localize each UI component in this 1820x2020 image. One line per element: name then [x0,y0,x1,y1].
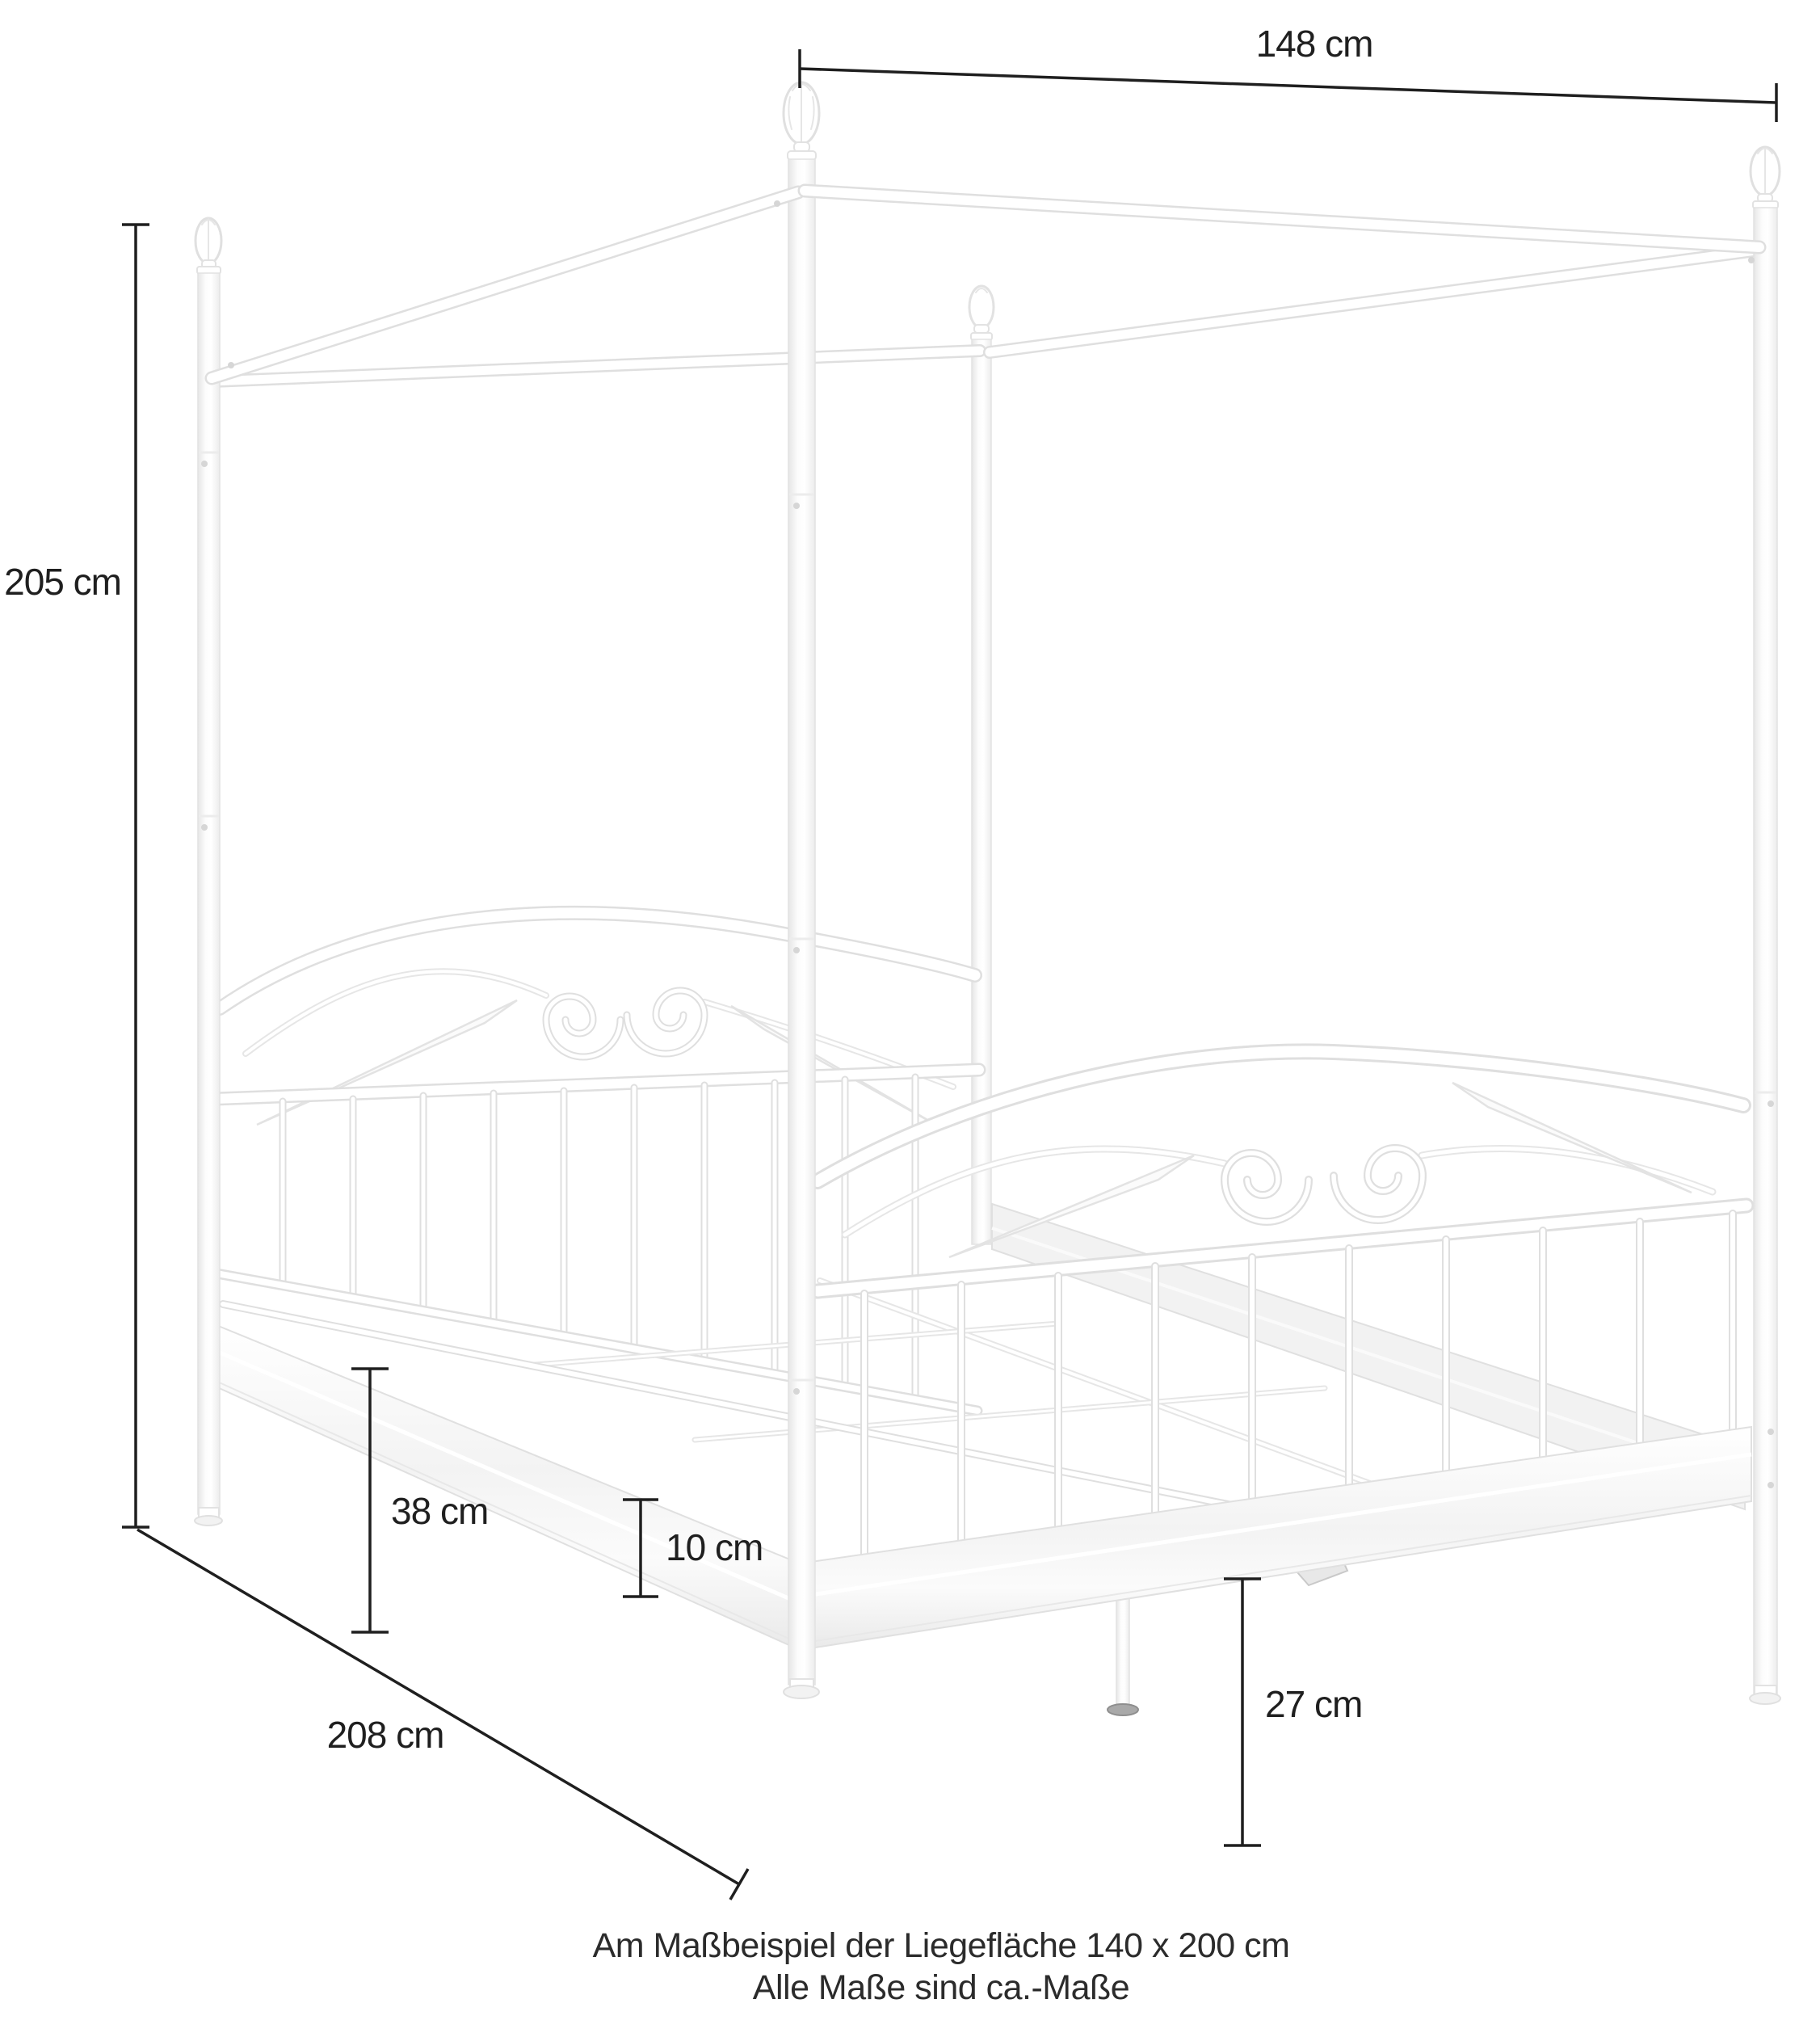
dimension-under-bed-clearance: 27 cm [1224,1579,1362,1845]
side-rail-left [208,1322,800,1650]
dimension-label-205: 205 cm [4,561,121,603]
post-foot [1750,1693,1780,1704]
dimension-label-27: 27 cm [1265,1683,1362,1725]
canopy-rail-right [990,250,1756,352]
footboard-right-blade [1452,1083,1692,1193]
canopy-rail-foot [805,191,1759,247]
canopy-rail-head [212,351,980,381]
dimension-label-148: 148 cm [1256,23,1373,65]
leg-foot-pad [1108,1704,1138,1715]
note-line-2: Alle Maße sind ca.-Maße [753,1968,1129,2007]
dimension-label-208: 208 cm [327,1714,444,1756]
headboard-scrolls [546,991,704,1057]
dimension-label-38: 38 cm [391,1490,488,1532]
post-head-left [195,218,222,1526]
headboard-bars [283,1077,915,1399]
note-line-1: Am Maßbeispiel der Liegefläche 140 x 200… [593,1926,1290,1965]
post-foot-right [1750,147,1780,1704]
dimension-label-10: 10 cm [666,1526,763,1568]
product-dimension-diagram: 148 cm 205 cm 38 cm 10 cm 27 cm 208 cm A… [0,0,1820,2020]
dimension-canopy-width: 148 cm [800,23,1776,122]
post-foot [195,1516,222,1526]
measurement-note: Am Maßbeispiel der Liegefläche 140 x 200… [593,1926,1290,2007]
footboard-scrolls [1225,1148,1423,1222]
frame-foot-beam [800,1427,1751,1650]
post-foot [784,1685,819,1698]
canopy-bed-illustration: 148 cm 205 cm 38 cm 10 cm 27 cm 208 cm A… [0,0,1820,2020]
dimension-total-height: 205 cm [4,225,149,1527]
canopy-rail-left [212,192,798,378]
center-support-leg [1108,1596,1138,1715]
post-foot-left [784,82,819,1698]
